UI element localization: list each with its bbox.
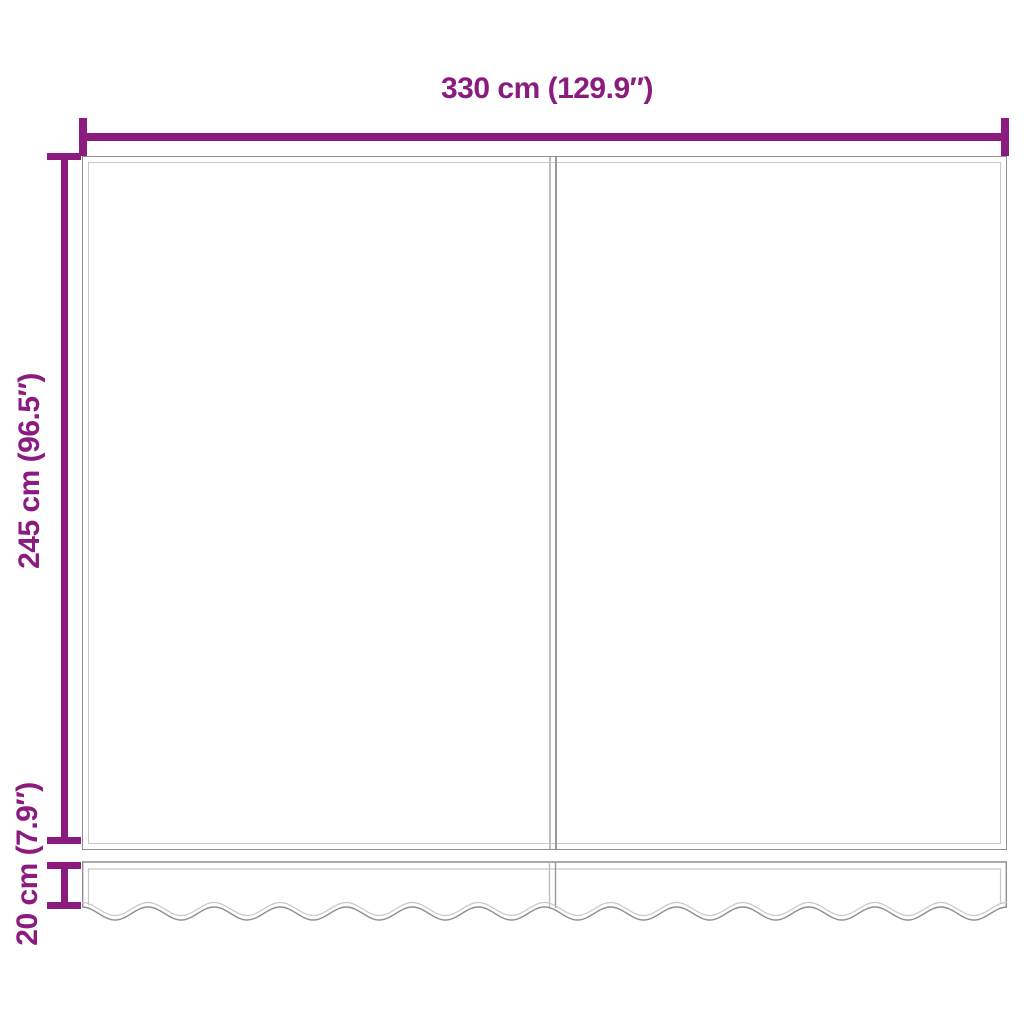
fabric-hem-line — [88, 162, 1001, 844]
height-dimension-top-cap — [47, 153, 81, 160]
valance-panel — [82, 861, 1007, 939]
height-dimension-line — [61, 156, 68, 844]
fabric-center-seam-left-line — [549, 157, 551, 849]
valance-dimension-label: 20 cm (7.9″) — [11, 782, 45, 945]
width-dimension-right-cap — [1001, 118, 1009, 156]
valance-scalloped-edge-outer — [82, 907, 1007, 920]
height-dimension-bottom-cap — [47, 837, 81, 844]
awning-dimension-diagram: 330 cm (129.9″) 245 cm (96.5″) 20 cm (7.… — [0, 0, 1024, 1024]
valance-dimension-bottom-cap — [47, 902, 81, 909]
width-dimension-label: 330 cm (129.9″) — [441, 72, 653, 106]
fabric-center-seam-right-line — [555, 157, 557, 849]
width-dimension-left-cap — [79, 118, 87, 156]
valance-dimension-top-cap — [47, 862, 81, 869]
height-dimension-label: 245 cm (96.5″) — [13, 373, 47, 569]
width-dimension-line — [82, 133, 1004, 141]
valance-dimension-line — [61, 866, 68, 906]
awning-fabric-panel — [82, 156, 1007, 850]
